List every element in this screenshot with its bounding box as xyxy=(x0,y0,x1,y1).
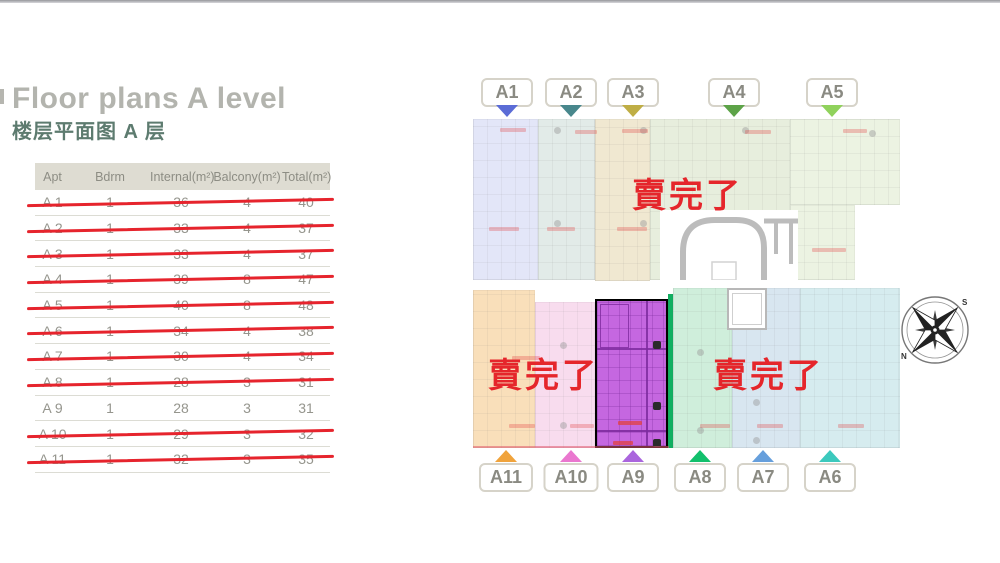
area-label xyxy=(812,248,846,252)
stairwell xyxy=(727,288,767,330)
column-dot xyxy=(653,402,661,410)
area-label xyxy=(617,227,647,231)
unit-label-a2: A2 xyxy=(545,78,597,107)
area-label xyxy=(570,424,594,428)
table-row: A 5 1 40 8 48 xyxy=(35,293,330,319)
unit-pointer-a8 xyxy=(689,450,711,462)
cell-internal: 28 xyxy=(150,400,212,416)
zone-a1 xyxy=(473,119,538,280)
table-row: A 6 1 34 4 38 xyxy=(35,318,330,344)
unit-label-a7: A7 xyxy=(737,463,789,492)
table-row: A 7 1 30 4 34 xyxy=(35,344,330,370)
unit-label-a4: A4 xyxy=(708,78,760,107)
column-dot xyxy=(753,399,760,406)
unit-label-a9: A9 xyxy=(607,463,659,492)
table-row: A 10 1 29 3 32 xyxy=(35,421,330,447)
area-label xyxy=(575,130,597,134)
cell-total: 37 xyxy=(282,220,330,236)
table-row: A 11 1 32 3 35 xyxy=(35,447,330,473)
unit-pointer-a6 xyxy=(819,450,841,462)
area-label xyxy=(745,130,771,134)
page-title: Floor plans A level xyxy=(12,82,286,116)
unit-label-a11: A11 xyxy=(479,463,533,492)
cell-total: 34 xyxy=(282,348,330,364)
compass-north-label: N xyxy=(901,352,907,361)
unit-label-a1: A1 xyxy=(481,78,533,107)
area-label xyxy=(500,128,526,132)
cell-apt: A 1 xyxy=(35,194,70,210)
column-dot xyxy=(869,130,876,137)
cell-apt: A 8 xyxy=(35,374,70,390)
slide-top-border xyxy=(0,0,1000,3)
unit-label-a6: A6 xyxy=(804,463,856,492)
cell-apt: A 11 xyxy=(35,451,70,467)
column-dot xyxy=(554,127,561,134)
column-dot xyxy=(653,341,661,349)
unit-label-a8: A8 xyxy=(674,463,726,492)
area-label xyxy=(757,424,783,428)
compass-south-label: S xyxy=(962,298,968,307)
column-dot xyxy=(640,220,647,227)
page-subtitle: 楼层平面图 A 层 xyxy=(12,115,166,144)
area-label xyxy=(613,441,633,445)
cell-bdrm: 1 xyxy=(70,400,150,416)
area-label xyxy=(509,424,535,428)
plan-edge-line xyxy=(473,446,669,448)
zone-a5-lower xyxy=(790,205,855,280)
table-row: A 1 1 36 4 40 xyxy=(35,190,330,216)
cell-apt: A 9 xyxy=(35,400,70,416)
cell-total: 32 xyxy=(282,426,330,442)
col-total: Total(m²) xyxy=(282,170,330,184)
area-label xyxy=(489,227,519,231)
unit-pointer-a4 xyxy=(723,105,745,117)
area-label xyxy=(700,424,730,428)
unit-pointer-a3 xyxy=(622,105,644,117)
area-label xyxy=(622,129,648,133)
column-dot xyxy=(697,349,704,356)
col-apt: Apt xyxy=(35,170,70,184)
unit-pointer-a5 xyxy=(821,105,843,117)
cell-apt: A 5 xyxy=(35,297,70,313)
sold-out-text-upper: 賣完了 xyxy=(632,168,743,217)
unit-label-a10: A10 xyxy=(543,463,598,492)
unit-pointer-a2 xyxy=(560,105,582,117)
table-row-available: A 9 1 28 3 31 xyxy=(35,396,330,422)
sold-out-text-lower-right: 賣完了 xyxy=(713,348,824,397)
sold-out-text-lower-left: 賣完了 xyxy=(488,348,599,397)
cell-total: 35 xyxy=(282,451,330,467)
area-label xyxy=(618,421,642,425)
cell-balcony: 3 xyxy=(212,400,282,416)
unit-label-a5: A5 xyxy=(806,78,858,107)
cell-total: 31 xyxy=(282,374,330,390)
col-bdrm: Bdrm xyxy=(70,170,150,184)
zone-a9-available xyxy=(595,299,668,448)
table-row: A 4 1 39 8 47 xyxy=(35,267,330,293)
column-dot xyxy=(554,220,561,227)
floor-plan-slide: Floor plans A level 楼层平面图 A 层 Apt Bdrm I… xyxy=(0,0,1000,563)
table-row: A 2 1 33 4 37 xyxy=(35,216,330,242)
col-internal: Internal(m²) xyxy=(150,170,212,184)
core-walls xyxy=(660,210,798,280)
unit-label-a3: A3 xyxy=(607,78,659,107)
apartment-table: Apt Bdrm Internal(m²) Balcony(m²) Total(… xyxy=(35,163,330,473)
building-core xyxy=(660,210,798,280)
compass-icon: N S xyxy=(896,291,974,374)
column-dot xyxy=(697,427,704,434)
cell-apt: A 2 xyxy=(35,220,70,236)
unit-pointer-a1 xyxy=(496,105,518,117)
cell-total: 48 xyxy=(282,297,330,313)
table-row: A 3 1 33 4 37 xyxy=(35,241,330,267)
col-balcony: Balcony(m²) xyxy=(212,170,282,184)
zone-a2 xyxy=(538,119,595,280)
area-label xyxy=(547,227,575,231)
area-label xyxy=(838,424,864,428)
a9-room xyxy=(600,304,629,348)
cell-total: 47 xyxy=(282,271,330,287)
edge-artifact xyxy=(0,89,4,104)
unit-pointer-a7 xyxy=(752,450,774,462)
cell-total: 40 xyxy=(282,194,330,210)
unit-pointer-a9 xyxy=(622,450,644,462)
unit-pointer-a10 xyxy=(560,450,582,462)
area-label xyxy=(843,129,867,133)
table-header: Apt Bdrm Internal(m²) Balcony(m²) Total(… xyxy=(35,163,330,190)
column-dot xyxy=(753,437,760,444)
column-dot xyxy=(560,422,567,429)
a9-wall xyxy=(646,301,648,446)
unit-pointer-a11 xyxy=(495,450,517,462)
table-row: A 8 1 28 3 31 xyxy=(35,370,330,396)
cell-total: 31 xyxy=(282,400,330,416)
